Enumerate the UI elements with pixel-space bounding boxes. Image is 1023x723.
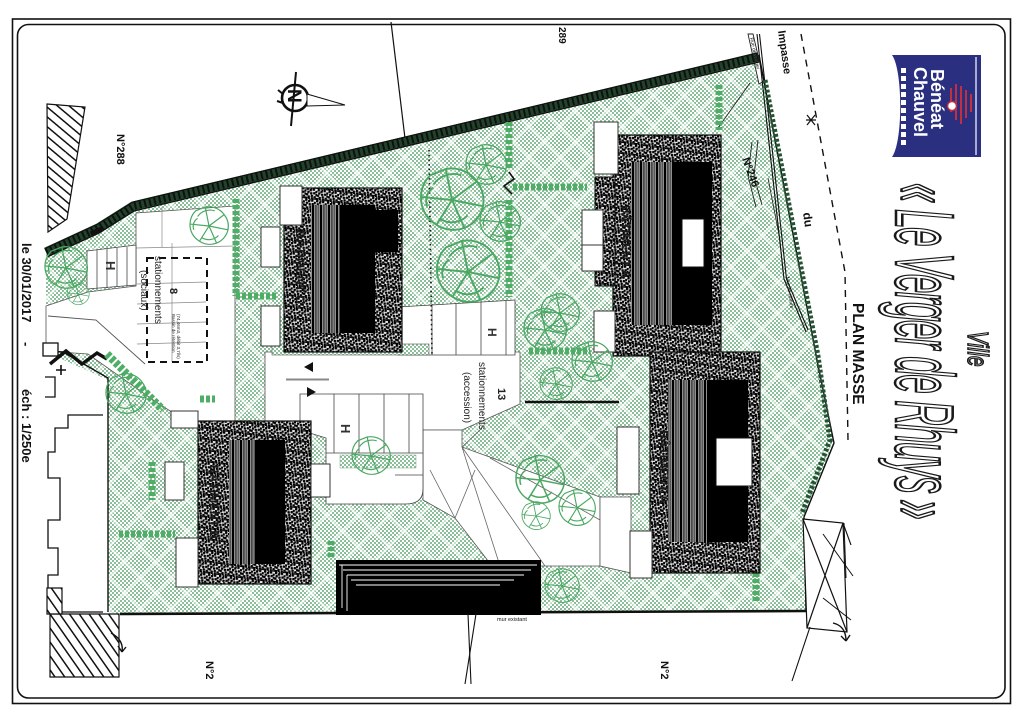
svg-text:Bassin de rétention: Bassin de rétention bbox=[171, 314, 176, 353]
svg-text:éch : 1/250e: éch : 1/250e bbox=[19, 389, 34, 463]
svg-text:BÂTIMENT C: BÂTIMENT C bbox=[293, 230, 308, 304]
svg-text:13: 13 bbox=[495, 388, 507, 400]
svg-text:289: 289 bbox=[556, 27, 567, 44]
svg-text:(accession): (accession) bbox=[461, 372, 472, 423]
svg-text:BÂTIMENT A: BÂTIMENT A bbox=[657, 430, 672, 504]
svg-text:8: 8 bbox=[167, 288, 179, 294]
svg-text:H: H bbox=[103, 261, 118, 270]
svg-text:mur existant: mur existant bbox=[497, 617, 527, 623]
svg-text:N: N bbox=[283, 89, 304, 103]
svg-text:-: - bbox=[19, 342, 34, 346]
svg-text:N°2: N°2 bbox=[203, 661, 215, 679]
svg-text:le 30/01/2017: le 30/01/2017 bbox=[19, 243, 34, 323]
svg-text:PLAN MASSE: PLAN MASSE bbox=[849, 303, 866, 405]
svg-text:H: H bbox=[485, 328, 499, 337]
svg-text:Ville: Ville bbox=[961, 331, 993, 367]
svg-text:H: H bbox=[338, 424, 353, 433]
svg-text:BÂTIMENT A: BÂTIMENT A bbox=[619, 205, 634, 279]
svg-text:« Le Verger de Rhuys »: « Le Verger de Rhuys » bbox=[878, 183, 969, 519]
svg-text:N°2: N°2 bbox=[658, 661, 670, 679]
svg-text:stationnements: stationnements bbox=[476, 362, 487, 430]
svg-text:(74,46m3, débit 3,7l/s): (74,46m3, débit 3,7l/s) bbox=[176, 314, 181, 359]
svg-text:N°288: N°288 bbox=[114, 134, 126, 165]
svg-text:du: du bbox=[800, 211, 816, 227]
svg-text:stationnements: stationnements bbox=[152, 256, 163, 324]
svg-text:BÂTIMENT B: BÂTIMENT B bbox=[207, 465, 222, 539]
svg-text:Chauvel: Chauvel bbox=[910, 67, 930, 137]
svg-text:(sociaux): (sociaux) bbox=[138, 270, 149, 311]
